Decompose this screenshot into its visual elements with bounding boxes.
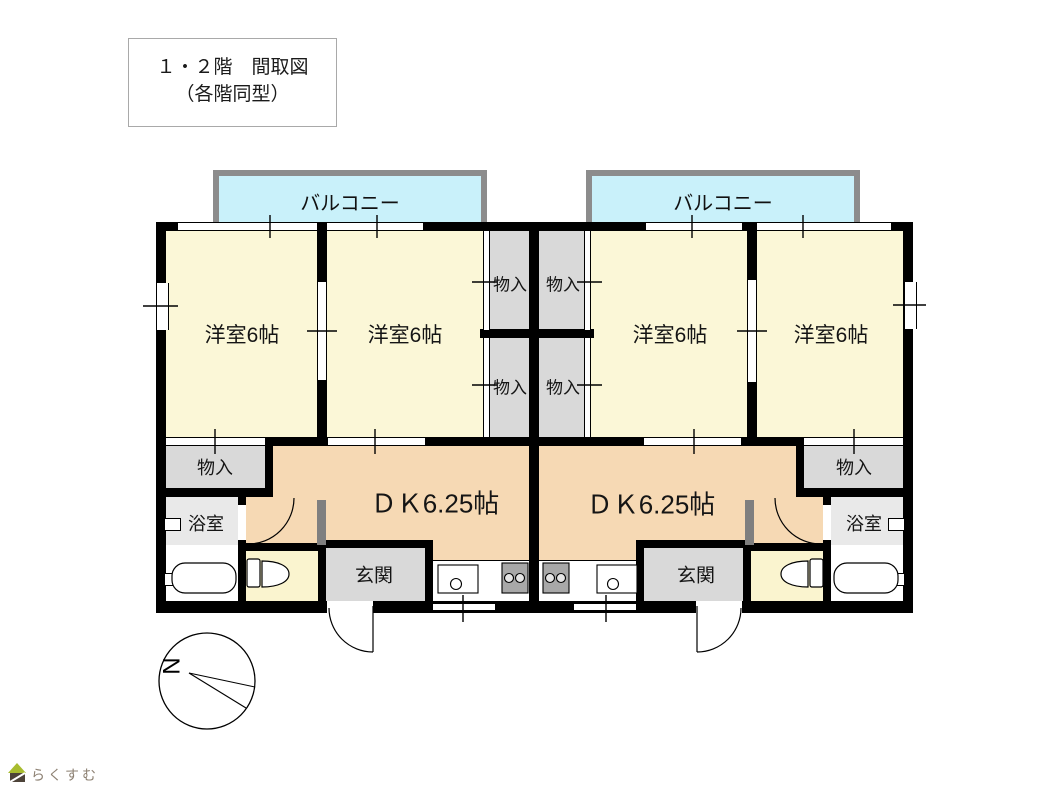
- closet-label-4: 物入: [546, 374, 580, 399]
- wall-entrance-left-left: [318, 543, 326, 601]
- compass-n-label: N: [157, 657, 184, 674]
- closet-door-1: [483, 231, 490, 330]
- closet-door-3: [584, 231, 591, 330]
- dk-label-left: ＤＫ6.25帖: [371, 484, 500, 521]
- entrance-label-left: 玄関: [355, 561, 393, 588]
- entrance-door-gap-left: [327, 601, 373, 613]
- wall-closet-divider: [480, 329, 594, 338]
- window-top-1: [178, 222, 317, 231]
- wall-entrance-left-top: [318, 540, 433, 548]
- window-right-wall: [904, 282, 917, 329]
- wall-storage-left-bottom: [156, 488, 273, 497]
- bath-door-gap-left: [238, 505, 246, 540]
- sliding-door-rooms-right: [747, 280, 757, 382]
- compass-icon: N: [157, 633, 255, 729]
- wall-entrance-right-left: [636, 546, 644, 601]
- toilet-room-right: [751, 551, 823, 601]
- window-kitchen-left: [433, 603, 495, 611]
- kitchen-counter-right: [539, 560, 636, 601]
- bath-door-gap-right: [823, 505, 831, 540]
- kitchen-counter-left: [433, 560, 529, 601]
- wall-outer-right: [903, 222, 913, 613]
- closet-door-2: [483, 338, 490, 437]
- balcony-right: バルコニー: [586, 170, 860, 222]
- closet-door-4: [584, 338, 591, 437]
- wall-entrance-right-right: [743, 543, 751, 601]
- balcony-label-right: バルコニー: [673, 187, 773, 216]
- title-line-1: １・２階 間取図: [129, 54, 336, 81]
- entrance-label-right: 玄関: [677, 561, 715, 588]
- toilet-room-left: [246, 551, 318, 601]
- window-bath-left-2: [164, 573, 181, 586]
- sliding-door-storage-left: [166, 437, 265, 446]
- storage-label-left: 物入: [197, 454, 233, 480]
- closet-label-2: 物入: [546, 271, 580, 296]
- closet-label-3: 物入: [493, 374, 527, 399]
- wall-toilet-left-top: [238, 543, 322, 551]
- room-label-2: 洋室6帖: [368, 319, 443, 349]
- window-bath-right-2: [888, 573, 905, 586]
- wall-entrance-left-right: [425, 546, 433, 601]
- wall-storage-right-bottom: [796, 488, 913, 497]
- window-bath-left-1: [164, 518, 181, 531]
- logo-text: らくすむ: [31, 765, 99, 785]
- wall-toilet-right-top: [747, 543, 831, 551]
- room-label-3: 洋室6帖: [633, 319, 708, 349]
- sliding-door-storage-right: [804, 437, 903, 446]
- floor-plan-canvas: １・２階 間取図 （各階同型） バルコニー バルコニー: [0, 0, 1061, 786]
- bath-label-right: 浴室: [846, 510, 882, 536]
- bath-label-left: 浴室: [188, 510, 224, 536]
- wall-center: [529, 222, 539, 613]
- sliding-door-dk-left: [328, 437, 425, 446]
- logo-house-icon: [8, 763, 26, 782]
- room-label-4: 洋室6帖: [794, 319, 869, 349]
- window-top-4: [757, 222, 891, 231]
- window-kitchen-right: [574, 603, 636, 611]
- closet-label-1: 物入: [493, 271, 527, 296]
- sliding-door-rooms-left: [317, 282, 327, 380]
- wall-entrance-right-top: [636, 540, 751, 548]
- window-top-3: [646, 222, 742, 231]
- window-top-2: [327, 222, 423, 231]
- entrance-door-gap-right: [696, 601, 742, 613]
- dk-label-right: ＤＫ6.25帖: [587, 485, 716, 522]
- title-box: １・２階 間取図 （各階同型）: [128, 38, 337, 127]
- balcony-left: バルコニー: [213, 170, 487, 222]
- sliding-door-dk-right: [644, 437, 741, 446]
- balcony-label-left: バルコニー: [300, 187, 400, 216]
- storage-label-right: 物入: [836, 454, 872, 480]
- title-line-2: （各階同型）: [129, 81, 336, 108]
- window-bath-right-1: [888, 518, 905, 531]
- room-label-1: 洋室6帖: [205, 319, 280, 349]
- wall-outer-left: [156, 222, 166, 613]
- window-left-wall: [156, 283, 169, 330]
